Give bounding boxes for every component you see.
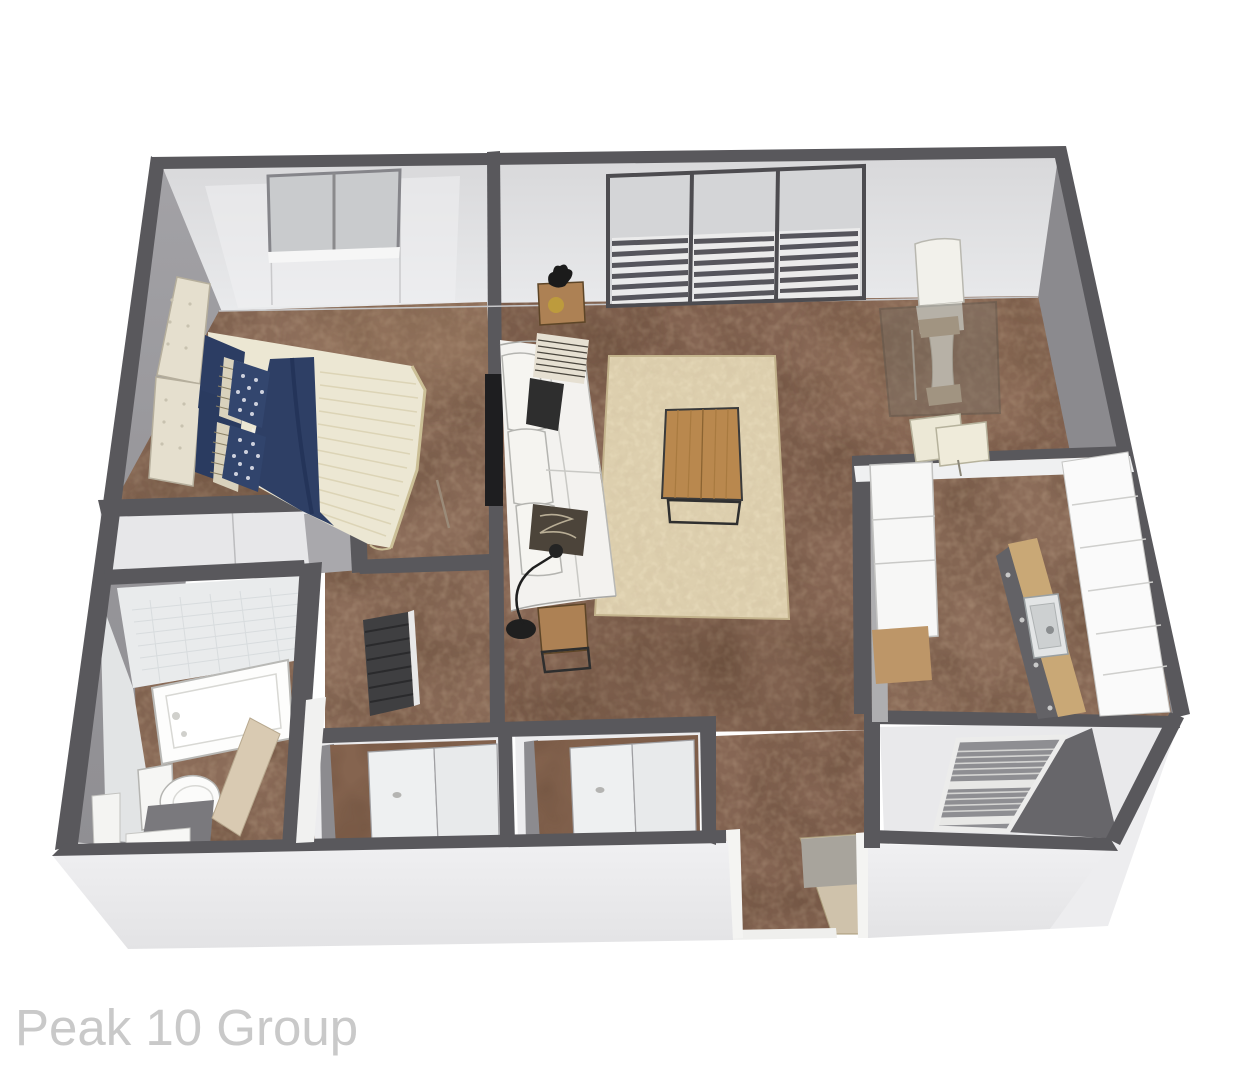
svg-text:Peak 10 Group: Peak 10 Group (15, 999, 358, 1056)
